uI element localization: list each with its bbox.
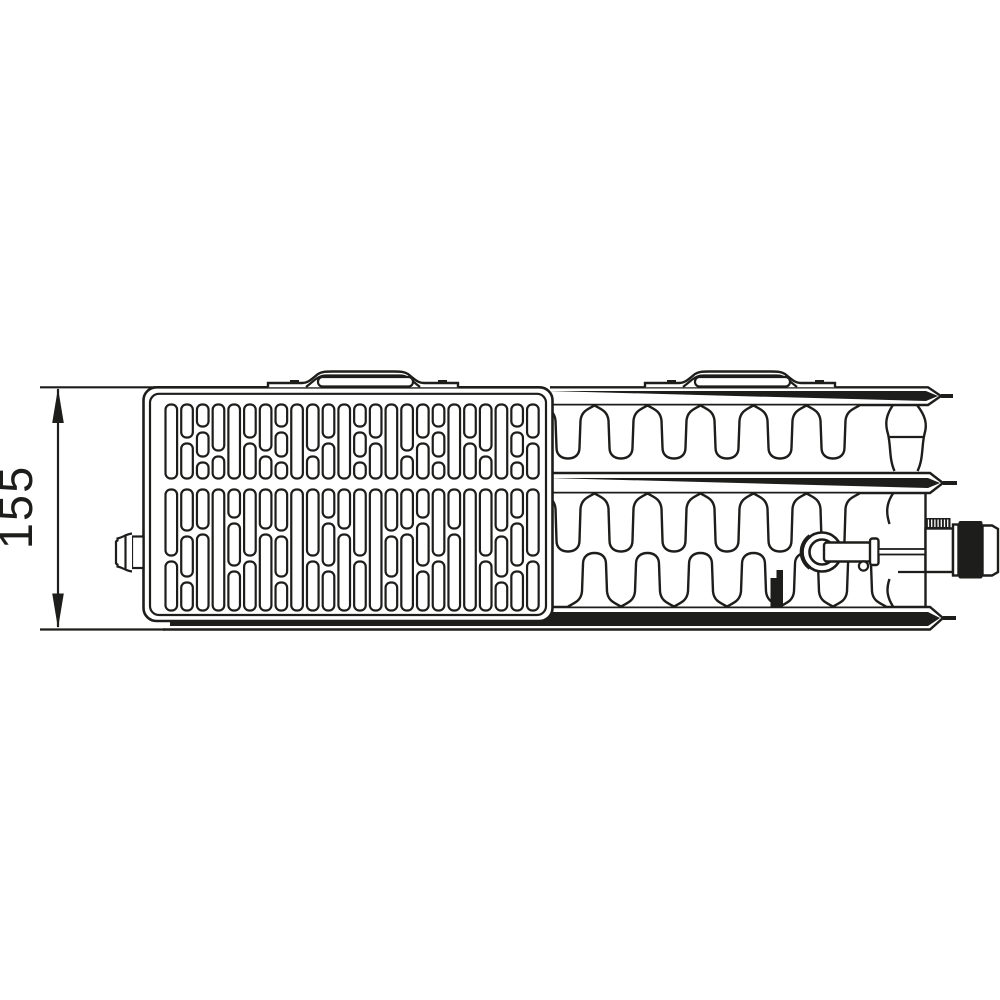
grille-slot bbox=[511, 524, 523, 566]
grille-slot bbox=[197, 463, 209, 479]
grille-slot bbox=[181, 537, 193, 577]
grille-slot bbox=[260, 405, 272, 451]
grille-slot bbox=[354, 562, 366, 611]
end-water-channel-upper bbox=[886, 405, 926, 471]
grille-slot bbox=[527, 405, 539, 438]
grille-slot bbox=[511, 490, 523, 518]
grille-slot bbox=[276, 433, 288, 457]
convector-fin bbox=[701, 406, 754, 459]
grille-slot bbox=[228, 524, 240, 566]
convector-fin bbox=[648, 494, 701, 552]
grille-slot bbox=[464, 490, 476, 611]
valve-connection bbox=[926, 518, 999, 579]
radiator-top-view-drawing: 155 bbox=[0, 0, 1000, 1000]
grille-slot bbox=[354, 433, 366, 457]
dimension-label: 155 bbox=[0, 465, 42, 549]
grille-slot bbox=[228, 405, 240, 479]
panel-middle-edge bbox=[548, 473, 957, 493]
grille-slot bbox=[401, 535, 413, 611]
grille-slot bbox=[370, 405, 382, 438]
panel-front-edge bbox=[548, 387, 953, 405]
valve-insert bbox=[802, 533, 926, 572]
grille-slot bbox=[433, 490, 445, 556]
weld-tab bbox=[771, 570, 784, 607]
convector-fin bbox=[595, 494, 648, 552]
grille-slot bbox=[386, 405, 398, 479]
convector-fins-upper bbox=[542, 406, 860, 459]
grille-slot bbox=[433, 405, 445, 427]
grille-slot bbox=[417, 524, 429, 566]
grille-slot bbox=[276, 537, 288, 577]
clip-tab bbox=[438, 380, 447, 383]
valve-flange bbox=[870, 539, 879, 566]
grille-slot bbox=[307, 562, 319, 611]
grille-slot bbox=[417, 444, 429, 479]
convector-fin bbox=[621, 553, 674, 607]
grille-slot bbox=[197, 433, 209, 457]
grille-slot bbox=[386, 490, 398, 531]
convector-fin bbox=[701, 494, 754, 552]
grille-slot bbox=[260, 490, 272, 529]
grille-slot bbox=[338, 490, 350, 529]
grille-slot bbox=[464, 444, 476, 479]
grille-slot bbox=[433, 433, 445, 457]
dimension-arrow-bottom bbox=[52, 594, 64, 629]
grille-slot bbox=[496, 537, 508, 577]
grille-slot bbox=[401, 457, 413, 479]
valve-knurled-band bbox=[926, 518, 951, 529]
clip-tab bbox=[815, 380, 824, 383]
grille-slot bbox=[401, 490, 413, 529]
grille-slot bbox=[166, 490, 178, 556]
grille-slot bbox=[276, 490, 288, 531]
grille-slot bbox=[276, 405, 288, 427]
clip-spring-plate bbox=[695, 377, 790, 387]
grille-slot bbox=[260, 535, 272, 611]
grille-slot bbox=[228, 572, 240, 611]
grille-slot bbox=[417, 572, 429, 611]
grille-slot bbox=[323, 490, 335, 518]
clip-tab bbox=[667, 380, 676, 383]
grille-slot bbox=[511, 433, 523, 457]
grille-slot bbox=[480, 490, 492, 556]
grille-slot bbox=[291, 405, 303, 479]
valve-cap-black bbox=[959, 521, 983, 579]
grille-slot bbox=[166, 405, 178, 479]
grille-slot bbox=[386, 583, 398, 611]
grille-slot bbox=[323, 572, 335, 611]
grille-slot bbox=[386, 537, 398, 577]
radiator-grille bbox=[144, 387, 553, 621]
grille-slot bbox=[354, 463, 366, 479]
grille-slot bbox=[181, 490, 193, 531]
grille-slot bbox=[527, 490, 539, 556]
grille-slot bbox=[496, 405, 508, 479]
grille-slot bbox=[307, 405, 319, 451]
mounting-clip-left bbox=[268, 372, 458, 388]
convector-fin bbox=[807, 406, 860, 459]
grille-slot bbox=[244, 444, 256, 479]
grille-slot bbox=[433, 463, 445, 479]
technical-drawing: 155 bbox=[0, 0, 1000, 1000]
grille-slot bbox=[496, 490, 508, 531]
grille-slot bbox=[197, 405, 209, 427]
grille-slot bbox=[181, 405, 193, 438]
grille-slot bbox=[307, 457, 319, 479]
grille-slot bbox=[181, 583, 193, 611]
grille-slot bbox=[354, 405, 366, 427]
grille-slot bbox=[244, 562, 256, 611]
vent-plug-left bbox=[116, 534, 144, 572]
grille-slot bbox=[181, 444, 193, 479]
convector-fin bbox=[754, 406, 807, 459]
grille-slot bbox=[527, 562, 539, 611]
grille-slot bbox=[370, 444, 382, 479]
valve-tube bbox=[824, 543, 871, 562]
grille-slot bbox=[166, 562, 178, 611]
valve-body bbox=[926, 529, 954, 573]
grille-slot bbox=[464, 405, 476, 438]
convector-fin bbox=[754, 494, 807, 552]
grille-slot bbox=[417, 490, 429, 518]
grille-slot bbox=[417, 405, 429, 438]
grille-slot bbox=[448, 405, 460, 479]
valve-step-ring bbox=[953, 525, 959, 576]
grille-slot bbox=[496, 583, 508, 611]
clip-spring-plate bbox=[318, 377, 413, 387]
grille-slot bbox=[401, 405, 413, 451]
grille-slot bbox=[448, 490, 460, 529]
grille-slot bbox=[480, 562, 492, 611]
grille-slot bbox=[260, 457, 272, 479]
grille-slot bbox=[433, 562, 445, 611]
clip-tab bbox=[290, 380, 299, 383]
valve-cap-outer bbox=[983, 526, 999, 576]
grille-slot bbox=[244, 490, 256, 556]
convector-fin bbox=[674, 553, 727, 607]
grille-slot bbox=[480, 405, 492, 451]
grille-slot bbox=[370, 490, 382, 611]
grille-slot bbox=[197, 490, 209, 529]
grille-slot bbox=[511, 405, 523, 427]
grille-slot bbox=[276, 583, 288, 611]
grille-slot bbox=[511, 572, 523, 611]
grille-slot bbox=[213, 490, 225, 611]
convector-fin bbox=[648, 406, 701, 459]
grille-slot bbox=[527, 444, 539, 479]
mounting-clip-right bbox=[645, 372, 835, 388]
grille-slot bbox=[448, 535, 460, 611]
grille-slot bbox=[197, 535, 209, 611]
grille-slot bbox=[323, 444, 335, 479]
grille-slot bbox=[213, 457, 225, 479]
grille-slot bbox=[338, 535, 350, 611]
grille-slot bbox=[228, 490, 240, 518]
grille-slot bbox=[323, 405, 335, 438]
grille-slot bbox=[213, 405, 225, 451]
grille-slot bbox=[511, 463, 523, 479]
convector-fin bbox=[595, 406, 648, 459]
grille-slot bbox=[307, 490, 319, 556]
grille-slot bbox=[354, 490, 366, 556]
valve-screw bbox=[859, 561, 868, 570]
grille-slot bbox=[276, 463, 288, 479]
grille-slot bbox=[244, 405, 256, 438]
valve-spindle bbox=[879, 549, 926, 555]
convector-fin bbox=[568, 553, 621, 607]
dimension-arrow-top bbox=[52, 388, 64, 423]
grille-slot bbox=[291, 490, 303, 611]
grille-slot bbox=[480, 457, 492, 479]
dimension-annotation: 155 bbox=[0, 387, 165, 629]
grille-slot bbox=[338, 405, 350, 479]
grille-slot bbox=[323, 524, 335, 566]
